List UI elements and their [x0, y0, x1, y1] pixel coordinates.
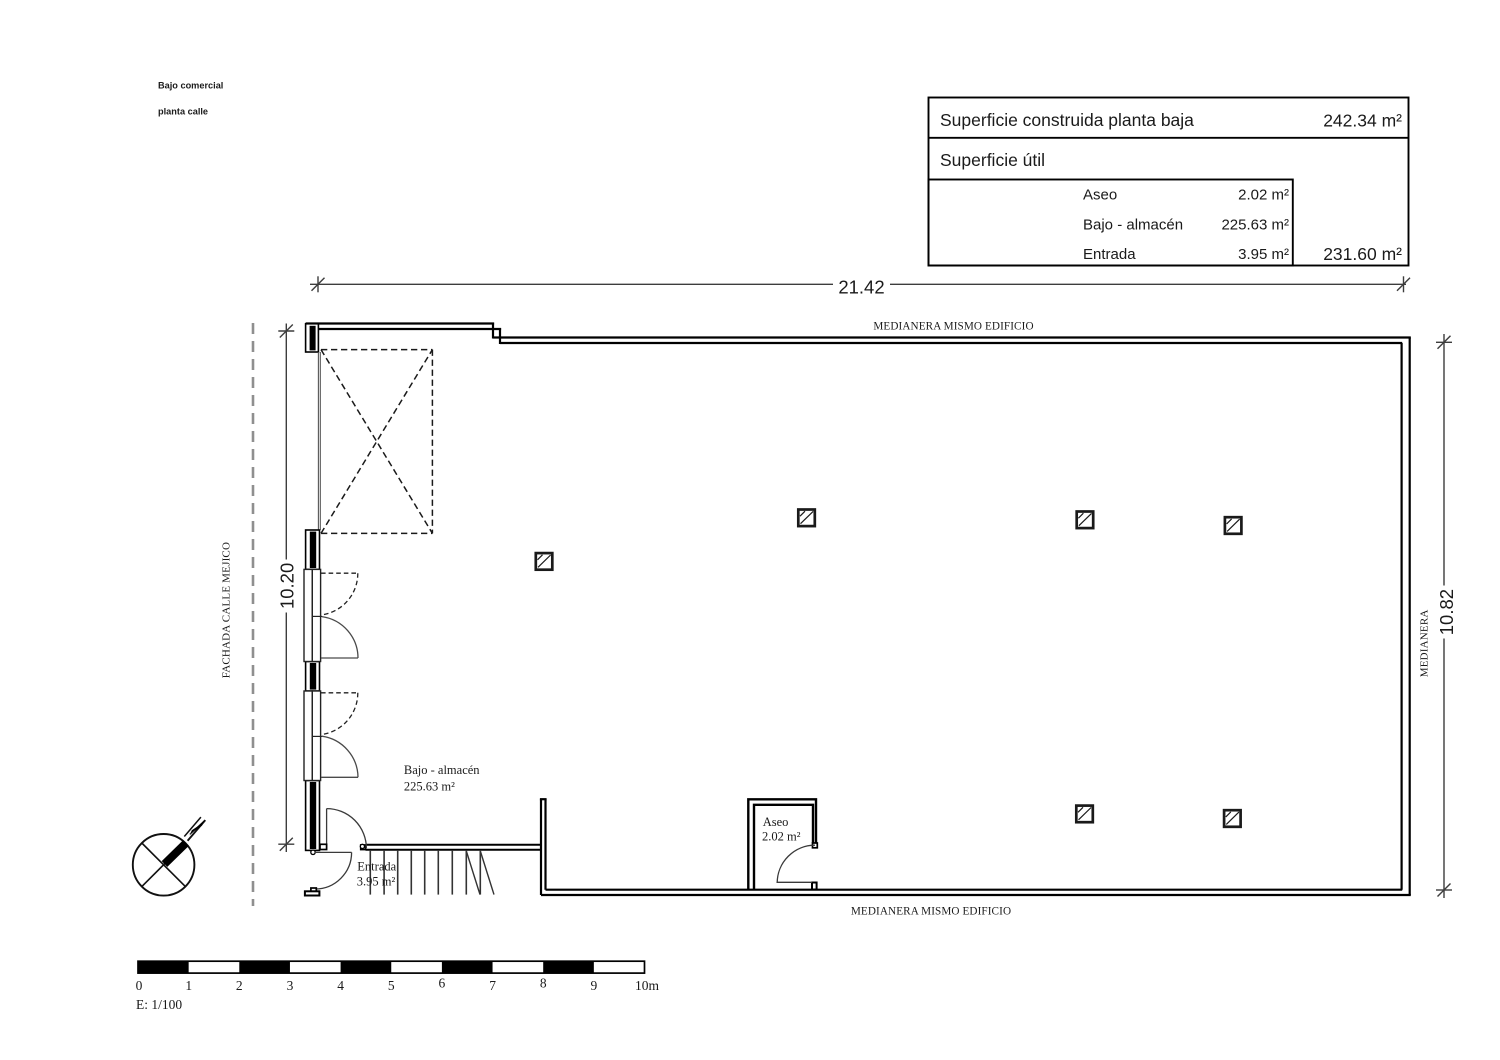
svg-text:21.42: 21.42: [838, 277, 884, 298]
svg-text:planta calle: planta calle: [158, 106, 208, 116]
svg-text:MEDIANERA: MEDIANERA: [1419, 610, 1431, 678]
svg-text:3.95 m²: 3.95 m²: [357, 875, 396, 889]
svg-text:Aseo: Aseo: [763, 815, 789, 829]
svg-text:Bajo - almacén: Bajo - almacén: [1083, 217, 1183, 234]
svg-text:0: 0: [136, 978, 143, 993]
svg-text:Superficie construida planta b: Superficie construida planta baja: [940, 110, 1194, 130]
svg-text:2.02 m²: 2.02 m²: [1238, 187, 1289, 204]
svg-text:Entrada: Entrada: [1083, 246, 1136, 263]
svg-text:10m: 10m: [635, 978, 660, 993]
svg-text:3: 3: [287, 978, 294, 993]
svg-text:Bajo comercial: Bajo comercial: [158, 80, 223, 90]
svg-text:5: 5: [388, 978, 395, 993]
svg-text:231.60 m²: 231.60 m²: [1323, 244, 1402, 264]
svg-text:3.95 m²: 3.95 m²: [1238, 246, 1289, 263]
svg-text:4: 4: [337, 978, 344, 993]
svg-text:Superficie útil: Superficie útil: [940, 150, 1045, 170]
svg-text:225.63 m²: 225.63 m²: [1221, 217, 1289, 234]
svg-text:Entrada: Entrada: [357, 859, 396, 873]
svg-text:225.63 m²: 225.63 m²: [404, 780, 455, 794]
svg-text:242.34 m²: 242.34 m²: [1323, 111, 1402, 131]
svg-text:FACHADA CALLE MEJICO: FACHADA CALLE MEJICO: [220, 542, 232, 678]
svg-text:8: 8: [540, 976, 547, 991]
svg-text:10.20: 10.20: [277, 563, 298, 609]
svg-text:9: 9: [591, 978, 598, 993]
svg-text:2: 2: [236, 978, 243, 993]
svg-text:MEDIANERA MISMO EDIFICIO: MEDIANERA MISMO EDIFICIO: [851, 906, 1011, 918]
svg-text:Bajo - almacén: Bajo - almacén: [404, 763, 480, 777]
svg-text:10.82: 10.82: [1436, 589, 1457, 635]
svg-text:MEDIANERA MISMO EDIFICIO: MEDIANERA MISMO EDIFICIO: [873, 320, 1033, 332]
svg-text:1: 1: [185, 978, 192, 993]
svg-text:Aseo: Aseo: [1083, 187, 1117, 204]
svg-text:2.02 m²: 2.02 m²: [762, 830, 801, 844]
svg-text:6: 6: [439, 976, 446, 991]
svg-text:E: 1/100: E: 1/100: [136, 997, 182, 1012]
svg-text:7: 7: [489, 978, 496, 993]
